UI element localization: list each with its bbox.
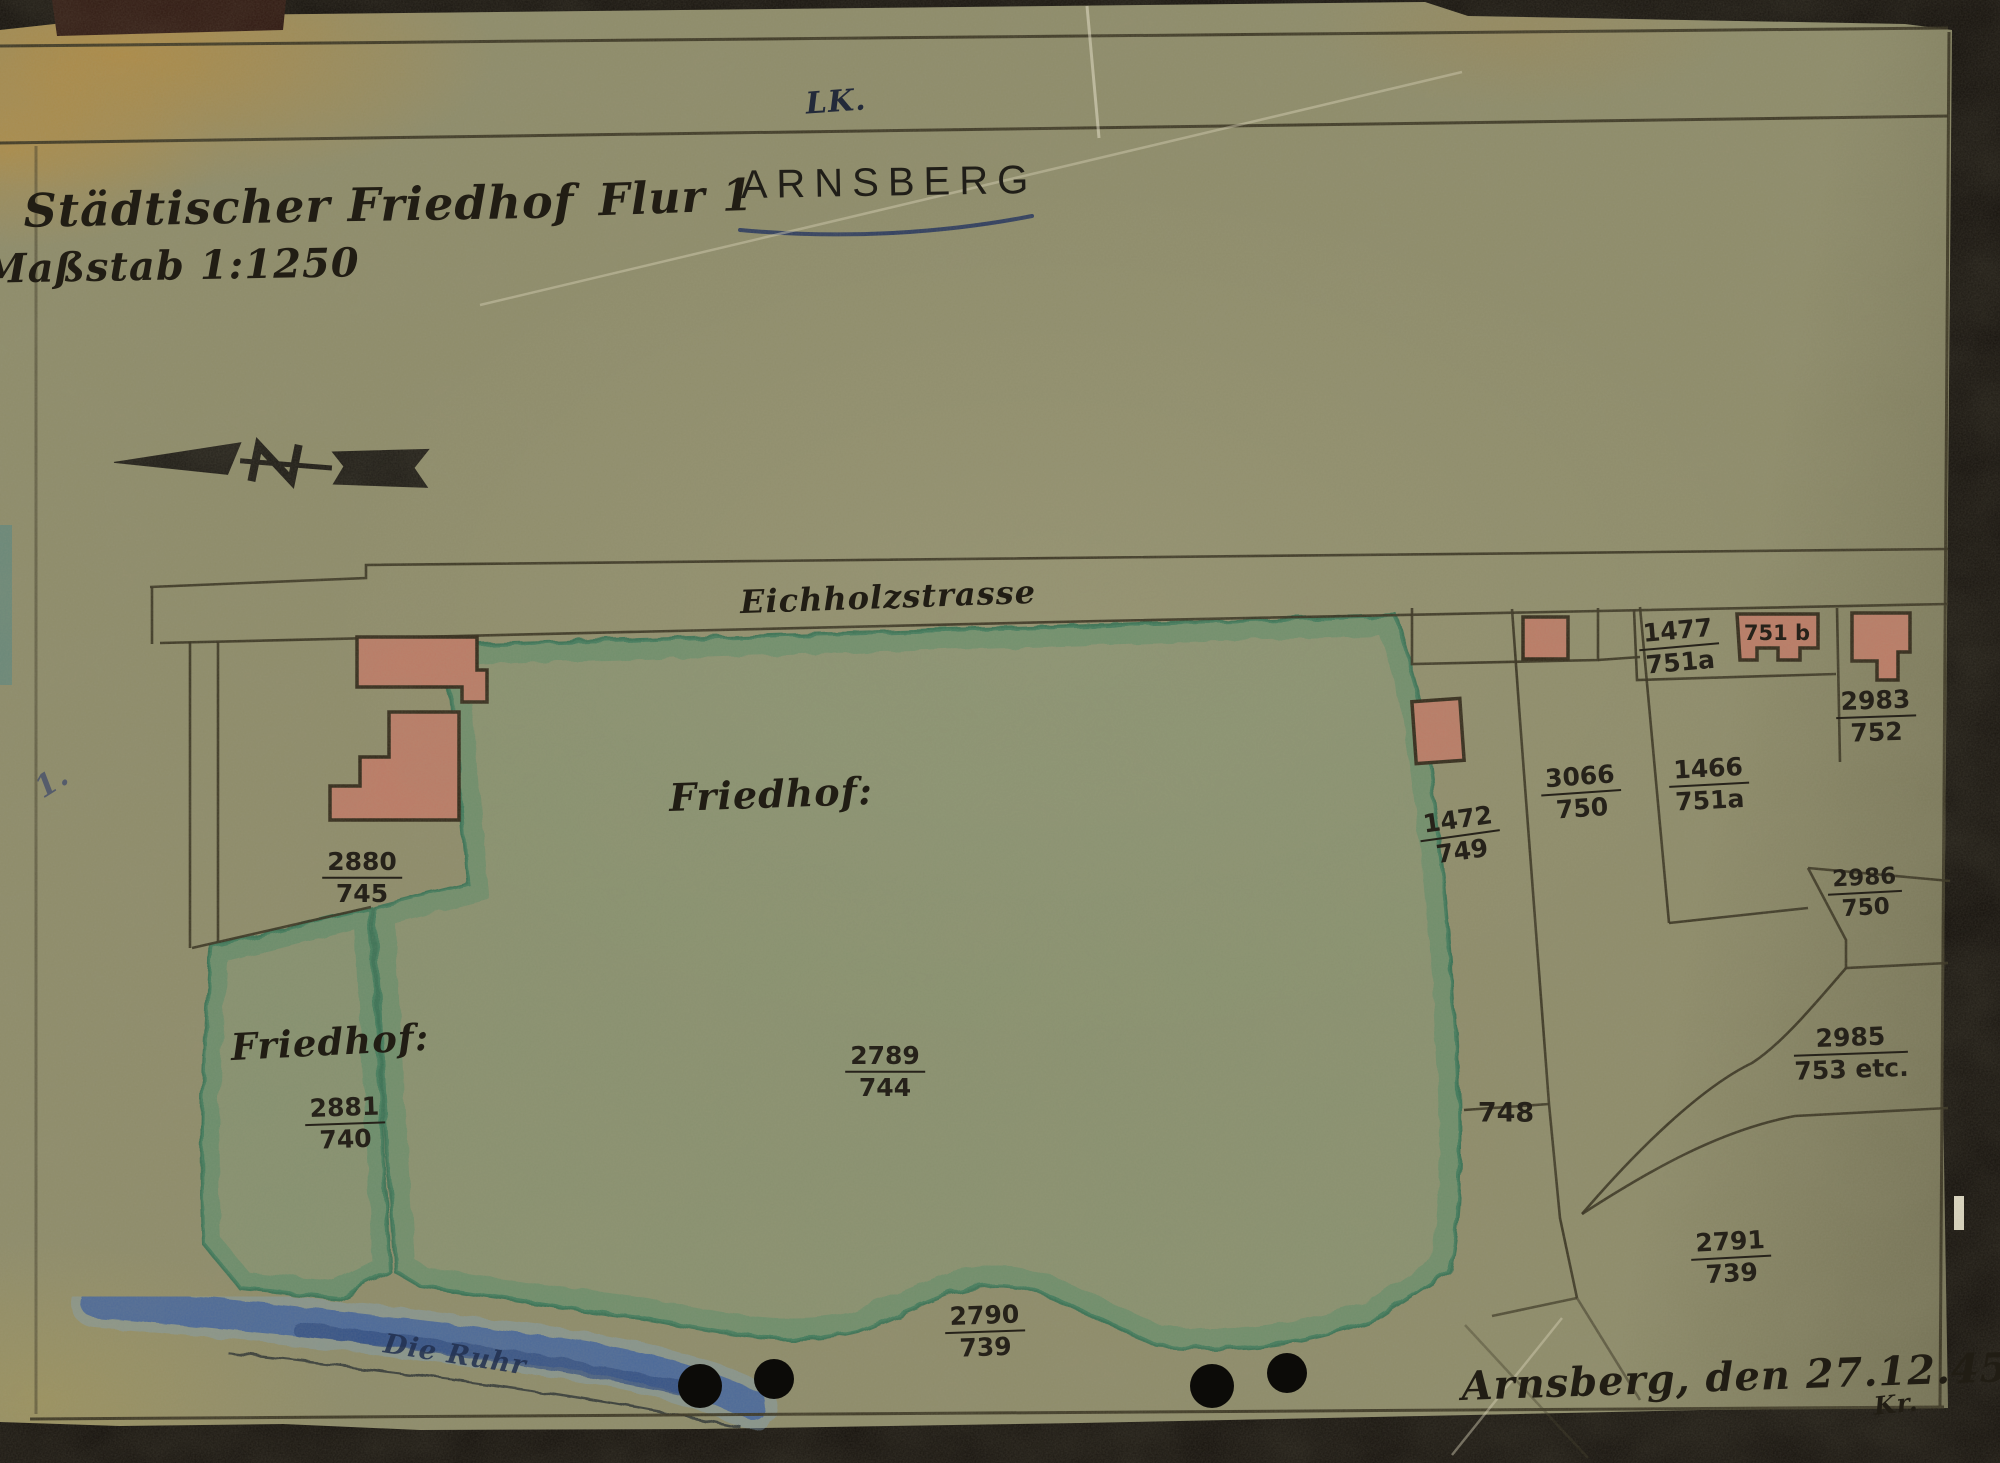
scale-note: Maßstab 1:1250	[0, 239, 360, 293]
parcel-denominator: 744	[845, 1073, 925, 1101]
parcel-number: 2881	[304, 1093, 385, 1126]
lk-note: LK.	[805, 82, 868, 121]
parcel-number: 1466	[1668, 754, 1749, 788]
parcel-number: 2790	[944, 1301, 1025, 1334]
parcel-denominator: 751a	[1669, 784, 1750, 816]
initials: Kr.	[1872, 1387, 1919, 1420]
parcel-label-2983-752: 2983 752	[1835, 686, 1917, 747]
parcel-denominator: 750	[1541, 791, 1622, 825]
parcel-label-748: 748	[1478, 1098, 1534, 1129]
parcel-number: 2789	[845, 1043, 925, 1073]
parcel-label-2986-750: 2986 750	[1827, 864, 1904, 922]
parcel-denominator: 740	[305, 1124, 386, 1155]
parcel-denominator: 739	[945, 1332, 1026, 1363]
parcel-denominator: 753 etc.	[1794, 1053, 1909, 1085]
parcel-denominator: 739	[1691, 1257, 1772, 1289]
parcel-label-751b: 751 b	[1744, 621, 1810, 645]
parcel-denominator: 752	[1836, 717, 1917, 748]
parcel-label-2985-753: 2985 753 etc.	[1793, 1023, 1909, 1085]
map-labels: LK. Städtischer Friedhof Maßstab 1:1250 …	[0, 0, 2000, 1463]
parcel-label-2881-740: 2881 740	[304, 1093, 386, 1154]
cemetery-label-left: Friedhof:	[230, 1015, 431, 1069]
parcel-number: 2985	[1793, 1023, 1908, 1057]
cemetery-label-main: Friedhof:	[668, 768, 873, 820]
scanned-cadastral-map-sheet: LK. Städtischer Friedhof Maßstab 1:1250 …	[0, 0, 2000, 1463]
parcel-label-1477-751a: 1477 751a	[1637, 614, 1721, 679]
parcel-label-1466-751a: 1466 751a	[1668, 754, 1751, 817]
place-name: ARNSBERG	[740, 158, 1037, 208]
date-signature: Arnsberg, den 27.12.45	[1461, 1344, 2000, 1410]
parcel-label-1472-749: 1472 749	[1417, 801, 1504, 870]
river-name: Die Ruhr	[381, 1328, 528, 1381]
parcel-denominator: 751a	[1639, 645, 1721, 680]
parcel-denominator: 745	[322, 879, 402, 907]
parcel-number: 2880	[322, 849, 402, 879]
margin-note: 1.	[29, 758, 76, 805]
flur-label: Flur 1	[598, 170, 755, 226]
parcel-denominator: 750	[1828, 892, 1903, 922]
parcel-label-2790-739: 2790 739	[944, 1301, 1026, 1362]
parcel-label-2789-744: 2789 744	[845, 1043, 925, 1102]
sheet-title: Städtischer Friedhof	[23, 174, 575, 238]
parcel-label-2791-739: 2791 739	[1690, 1227, 1773, 1290]
parcel-label-3066-750: 3066 750	[1539, 761, 1622, 825]
parcel-label-2880-745: 2880 745	[322, 849, 402, 908]
parcel-number: 2983	[1835, 686, 1916, 719]
parcel-number: 2791	[1690, 1227, 1771, 1261]
parcel-number: 2986	[1827, 864, 1902, 896]
street-name: Eichholzstrasse	[739, 573, 1036, 621]
